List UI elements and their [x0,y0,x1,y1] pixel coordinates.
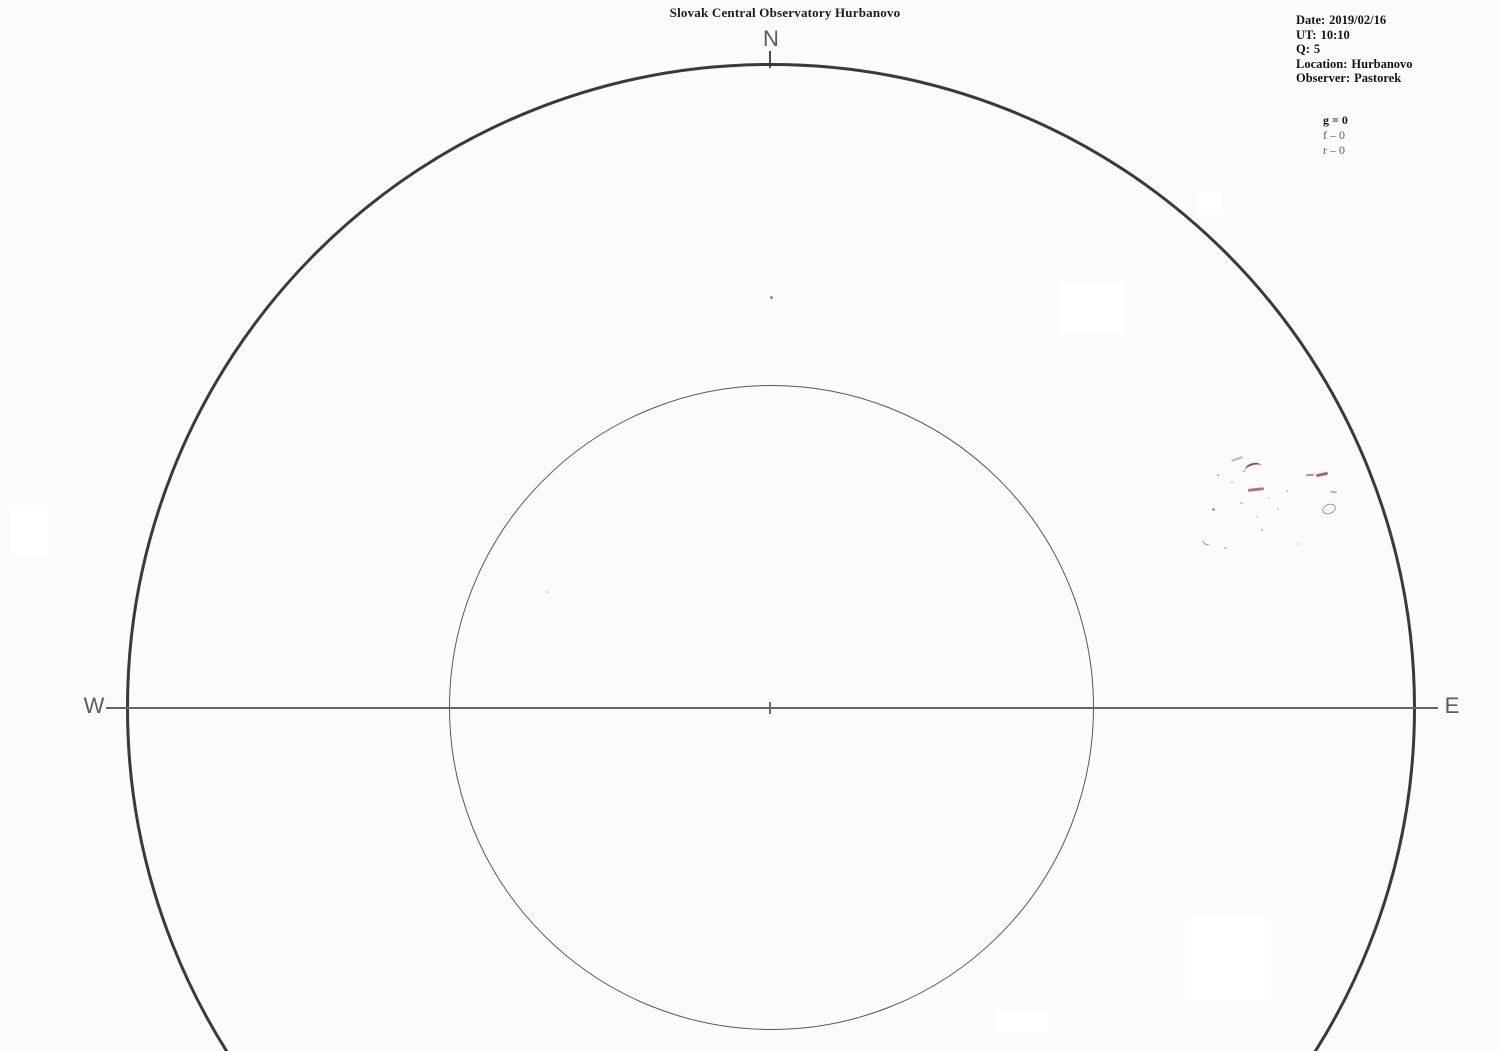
sunspot-remnant-mark [1212,508,1215,511]
sunspot-remnant-mark [1286,490,1288,492]
sunspot-remnant-mark [1268,497,1270,499]
sunspot-remnant-mark [1297,543,1299,545]
info-line-date: Date:2019/02/16 [1296,13,1413,28]
scan-artifact-patch [10,505,48,555]
sunspot-remnant-mark [1231,481,1233,483]
sunspot-remnant-mark [1256,516,1258,518]
sunspot-remnant-mark [545,591,549,593]
compass-label-west: W [84,693,105,719]
scan-artifact-patch [1197,192,1222,215]
scan-artifact-patch [1059,283,1125,333]
sunspot-remnant-mark [1224,547,1227,549]
group-count: g = 0 [1323,113,1348,128]
solar-observation-sheet: Slovak Central Observatory Hurbanovo Dat… [0,0,1500,1051]
spot-count: f – 0 [1323,128,1348,143]
disk-center-mark [769,702,771,714]
compass-label-east: E [1445,693,1460,719]
sunspot-remnant-mark [1240,502,1243,504]
sunspot-remnant-mark [1243,470,1245,472]
sunspot-remnant-mark [770,296,773,299]
info-line-ut: UT:10:10 [1296,28,1413,43]
info-line-observer: Observer:Pastorek [1296,71,1413,86]
relative-number: r – 0 [1323,143,1348,158]
spot-counts-block: g = 0 f – 0 r – 0 [1323,113,1348,158]
compass-label-north: N [763,26,779,52]
sunspot-remnant-mark [1261,529,1263,531]
info-line-location: Location:Hurbanovo [1296,57,1413,72]
east-west-line [106,707,1438,709]
page-title: Slovak Central Observatory Hurbanovo [670,5,901,21]
info-line-quality: Q:5 [1296,42,1413,57]
observation-info-block: Date:2019/02/16 UT:10:10 Q:5 Location:Hu… [1296,13,1413,86]
scan-artifact-patch [1185,917,1271,1001]
sunspot-remnant-mark [1277,508,1279,510]
sunspot-remnant-mark [1217,474,1219,476]
scan-artifact-patch [995,1010,1048,1032]
